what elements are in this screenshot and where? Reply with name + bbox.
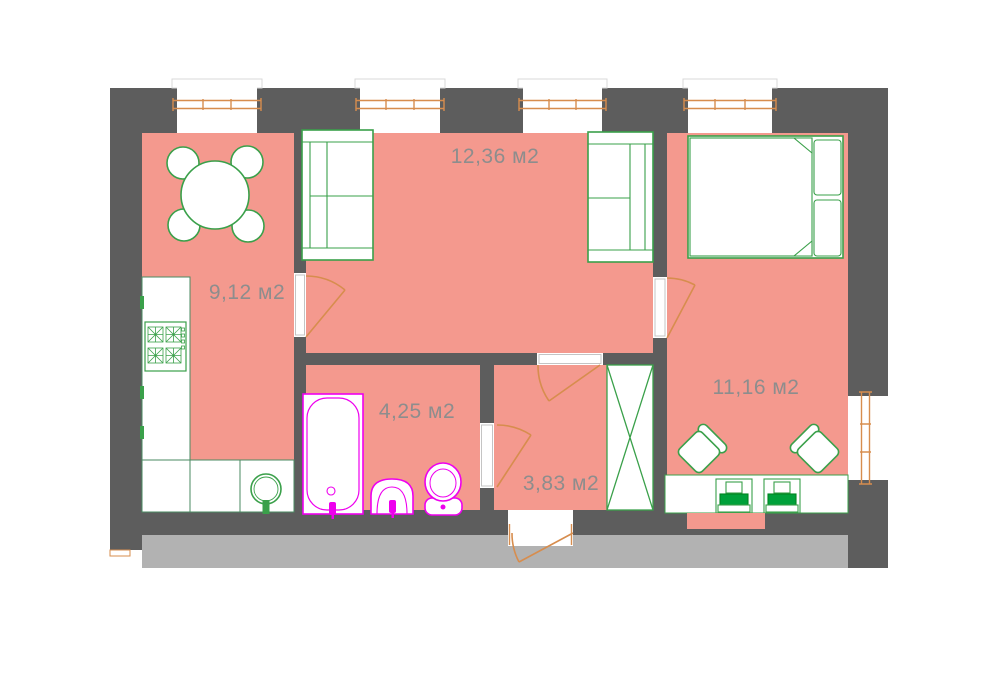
sofa-icon — [302, 130, 373, 260]
hallway-furniture — [607, 365, 653, 510]
window-icon — [848, 392, 888, 484]
floor-plan: 9,12 м2 12,36 м2 4,25 м2 3,83 м2 11,16 м… — [0, 0, 1000, 679]
pillow-icon — [814, 200, 841, 256]
floor-plan-drawing — [0, 0, 1000, 679]
workstation-icon — [764, 479, 800, 513]
window-icon — [683, 79, 777, 133]
pillow-icon — [814, 140, 841, 195]
kitchen-area-label: 9,12 м2 — [209, 281, 285, 305]
window-icon — [518, 79, 607, 133]
window-icon — [355, 79, 445, 133]
sofa-icon — [588, 132, 653, 262]
wash-basin-icon — [371, 479, 413, 518]
double-bed-icon — [688, 136, 843, 258]
hallway-area-label: 3,83 м2 — [523, 472, 599, 496]
dining-table-icon — [181, 161, 249, 229]
ground-strip — [142, 535, 848, 568]
bathtub-icon — [303, 394, 363, 519]
window-icon — [172, 79, 262, 133]
stove-icon — [145, 322, 186, 371]
living-room-area-label: 12,36 м2 — [451, 145, 540, 169]
bathroom-area-label: 4,25 м2 — [379, 400, 455, 424]
desk-icon — [665, 475, 848, 513]
wardrobe-icon — [607, 365, 653, 510]
desk-rug — [687, 513, 765, 529]
toilet-icon — [425, 463, 462, 515]
workstation-icon — [716, 479, 752, 513]
bedroom-area-label: 11,16 м2 — [713, 376, 800, 400]
